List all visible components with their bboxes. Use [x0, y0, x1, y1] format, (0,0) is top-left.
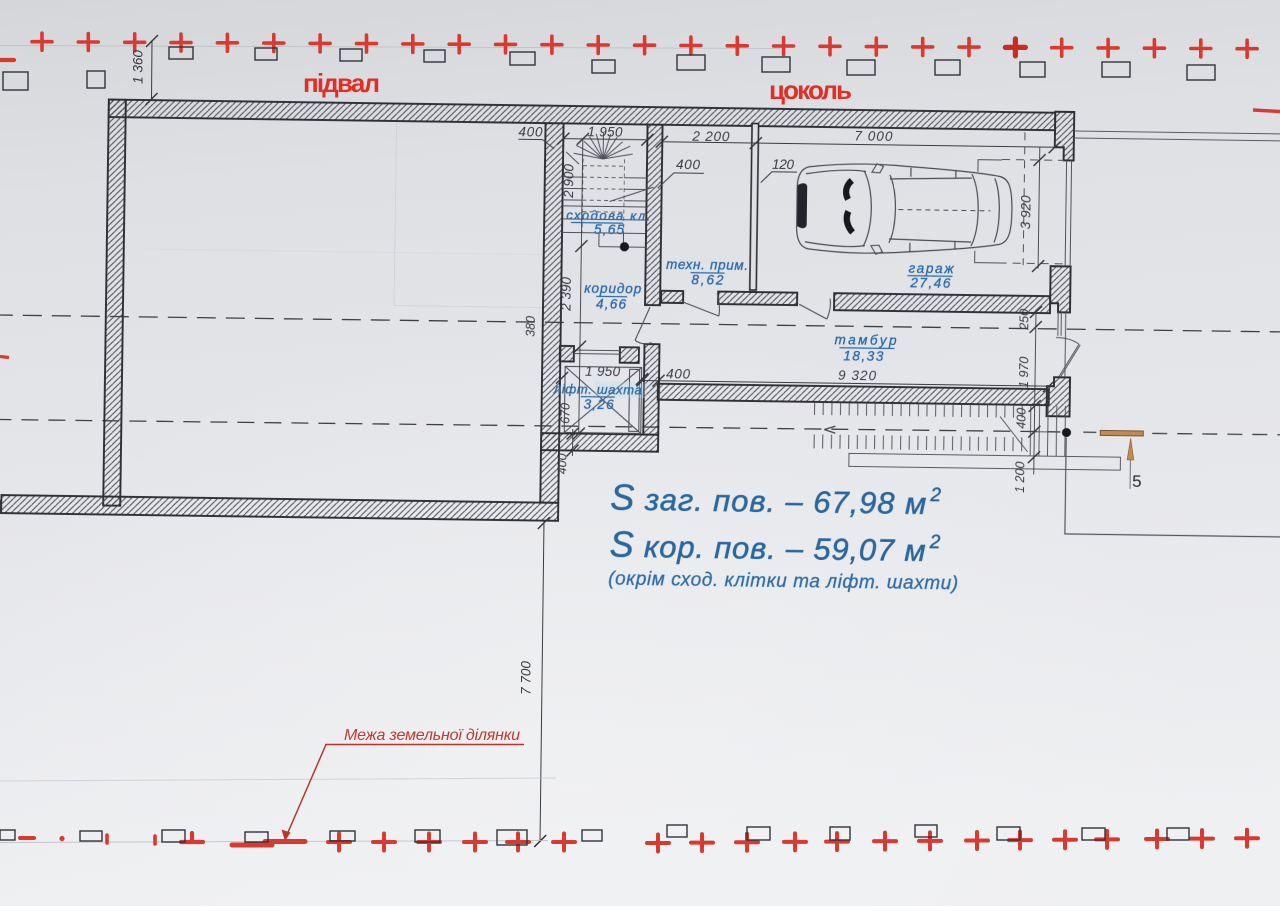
- svg-text:400: 400: [555, 453, 569, 474]
- svg-text:670: 670: [558, 403, 572, 424]
- svg-text:120: 120: [772, 157, 795, 172]
- svg-text:1 970: 1 970: [1017, 357, 1031, 389]
- svg-text:2: 2: [929, 532, 941, 553]
- svg-text:підвал: підвал: [303, 68, 380, 98]
- svg-text:2 200: 2 200: [691, 129, 730, 145]
- svg-text:5: 5: [1132, 472, 1142, 491]
- svg-text:27,46: 27,46: [909, 275, 951, 291]
- svg-text:3,26: 3,26: [584, 397, 615, 412]
- svg-text:7 000: 7 000: [854, 128, 893, 144]
- svg-text:цоколь: цоколь: [769, 75, 852, 105]
- svg-text:5,65: 5,65: [594, 222, 625, 237]
- svg-text:Межа земельної ділянки: Межа земельної ділянки: [344, 727, 520, 744]
- svg-text:7 700: 7 700: [519, 661, 534, 695]
- svg-text:3 920: 3 920: [1018, 195, 1033, 229]
- svg-text:18,33: 18,33: [843, 348, 884, 364]
- svg-text:1 200: 1 200: [1013, 461, 1027, 493]
- svg-text:400: 400: [518, 124, 543, 139]
- svg-text:1 950: 1 950: [585, 364, 621, 379]
- svg-text:8,62: 8,62: [691, 272, 724, 287]
- svg-text:2 390: 2 390: [558, 276, 573, 311]
- svg-text:2 900: 2 900: [561, 163, 576, 198]
- svg-text:400: 400: [676, 157, 701, 172]
- svg-text:2: 2: [929, 485, 941, 506]
- svg-text:техн. прим.: техн. прим.: [666, 257, 748, 273]
- svg-text:9 320: 9 320: [838, 368, 877, 384]
- svg-text:коридор: коридор: [584, 281, 642, 297]
- svg-text:ліфт. шахта: ліфт. шахта: [553, 381, 642, 397]
- svg-text:400: 400: [1014, 408, 1028, 429]
- svg-text:380: 380: [524, 316, 538, 337]
- svg-text:4,66: 4,66: [596, 296, 627, 311]
- svg-text:250: 250: [1017, 309, 1031, 331]
- svg-text:400: 400: [666, 366, 691, 381]
- svg-text:1 360: 1 360: [131, 50, 146, 84]
- svg-text:1 950: 1 950: [587, 124, 623, 139]
